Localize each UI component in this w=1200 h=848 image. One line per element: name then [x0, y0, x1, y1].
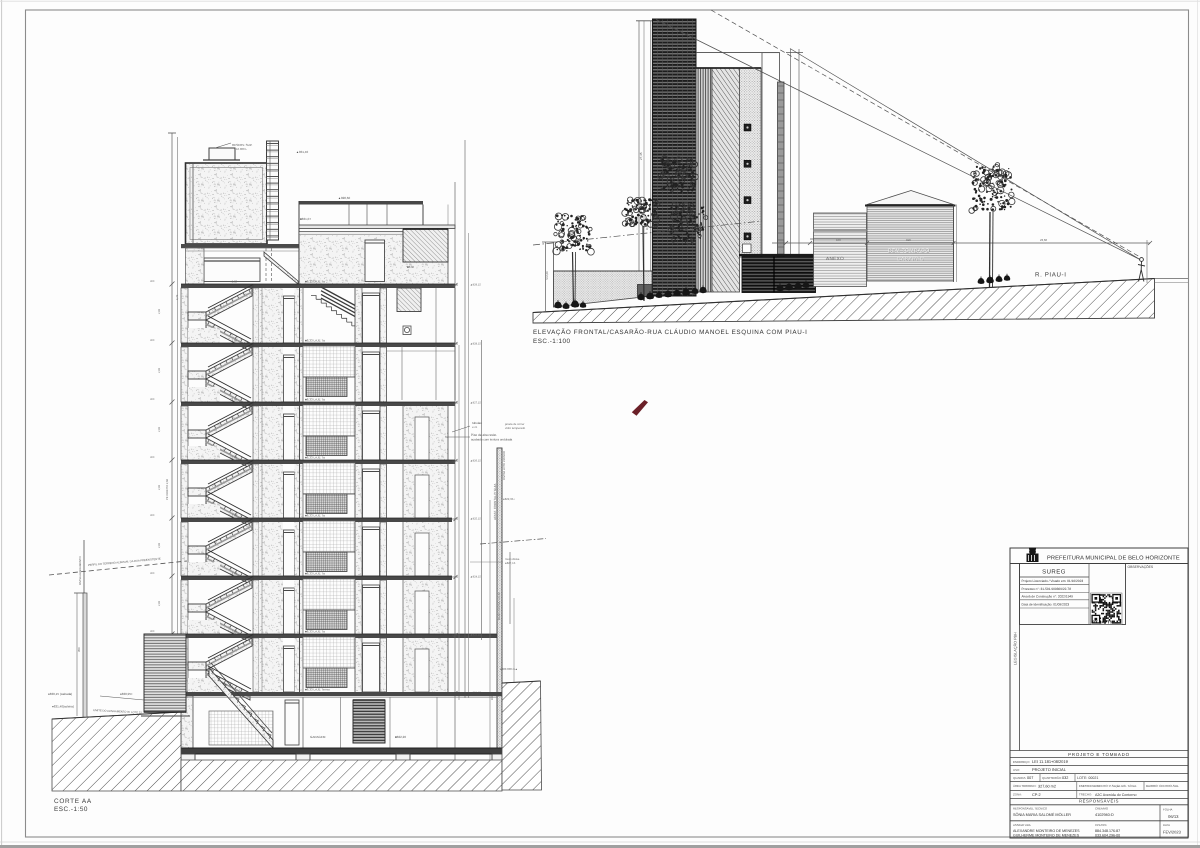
svg-text:300: 300	[150, 630, 155, 633]
svg-text:vidro temperado: vidro temperado	[505, 426, 526, 430]
svg-text:ANEXO: ANEXO	[826, 256, 844, 261]
svg-text:LEGISLAÇÃO PBH: LEGISLAÇÃO PBH	[1013, 632, 1018, 665]
svg-text:ALEXANDRE MONTEIRO DE MENEZ: ALEXANDRE MONTEIRO DE MENEZES	[1013, 829, 1080, 833]
svg-text:Data de Identificação: 01/09/: Data de Identificação: 01/09/2023	[1022, 603, 1070, 607]
svg-text:+2,88: +2,88	[230, 514, 238, 518]
svg-text:BEM TOMBADO: BEM TOMBADO	[888, 248, 930, 254]
svg-text:300: 300	[150, 514, 155, 517]
svg-text:ELEVAÇÃO FRONTAL/CASARÃO-RUA: ELEVAÇÃO FRONTAL/CASARÃO-RUA CLÁUDIO MAN…	[533, 328, 808, 336]
svg-text:Piso de alta resist.: Piso de alta resist.	[471, 433, 497, 437]
svg-text:27,45: 27,45	[639, 152, 643, 160]
svg-text:▲823,15: ▲823,15	[470, 634, 481, 637]
svg-text:+2,88: +2,88	[230, 339, 238, 343]
svg-text:CP-2: CP-2	[1032, 793, 1041, 797]
svg-text:+2,88: +2,88	[230, 630, 238, 634]
svg-text:R. PIAU-I: R. PIAU-I	[1035, 272, 1067, 279]
svg-text:300: 300	[150, 572, 155, 575]
svg-text:2,88: 2,88	[158, 542, 161, 548]
svg-text:▲827,15: ▲827,15	[470, 402, 481, 405]
svg-text:ÁREA TERRENO:: ÁREA TERRENO:	[1013, 784, 1037, 788]
svg-text:GARAGEM: GARAGEM	[310, 735, 326, 739]
svg-text:DIVISA LOTE VIZINHO: DIVISA LOTE VIZINHO	[502, 450, 506, 480]
svg-text:ø 25: ø 25	[472, 426, 478, 429]
svg-text:PROJETO INICIAL: PROJETO INICIAL	[1032, 767, 1067, 772]
svg-text:SUREG: SUREG	[1042, 569, 1066, 576]
svg-text:QUARTEIRÃO:: QUARTEIRÃO:	[1042, 776, 1062, 780]
svg-text:■822,20: ■822,20	[395, 735, 406, 739]
svg-text:CASARÃO: CASARÃO	[897, 256, 924, 263]
svg-text:EMPREENDIMENTO: P.Seção Urb.: EMPREENDIMENTO: P.Seção Urb. Térreo	[1079, 784, 1137, 788]
svg-text:▲831,40: ▲831,40	[296, 150, 308, 154]
svg-text:16.000 L: 16.000 L	[236, 147, 247, 151]
svg-text:▲829,15: ▲829,15	[470, 284, 481, 287]
svg-text:GUILHERME MONTEIRO DE MENEZ: GUILHERME MONTEIRO DE MENEZES	[1013, 834, 1080, 838]
svg-text:+2,88: +2,88	[230, 280, 238, 284]
svg-text:QUADRA:: QUADRA:	[1013, 776, 1026, 780]
svg-text:350: 350	[77, 647, 81, 652]
svg-text:■8,33 LAJE 7a: ■8,33 LAJE 7a	[305, 630, 325, 634]
svg-text:tubulao: tubulao	[472, 421, 482, 425]
svg-text:ESC.-1:50: ESC.-1:50	[54, 806, 88, 813]
svg-text:Processo n°: 31-501.909309/22: Processo n°: 31-501.909309/22-78	[1022, 587, 1072, 591]
svg-text:FOLHA: FOLHA	[1163, 808, 1172, 812]
svg-text:▲824,15: ▲824,15	[470, 576, 481, 579]
svg-text:Alvará de Construção n°: 2022: Alvará de Construção n°: 2022/1949	[1022, 595, 1074, 599]
svg-text:+2,88: +2,88	[230, 398, 238, 402]
svg-text:A2C Avenida do Contorno: A2C Avenida do Contorno	[1095, 793, 1137, 797]
svg-text:2,88: 2,88	[158, 484, 161, 490]
svg-text:+2,88: +2,88	[230, 456, 238, 460]
svg-text:06/13: 06/13	[1168, 814, 1179, 819]
svg-text:DIVISA ALINHAMENTO: DIVISA ALINHAMENTO	[79, 556, 82, 585]
svg-text:LOTE: 00021: LOTE: 00021	[1077, 776, 1098, 780]
svg-text:4102940-D: 4102940-D	[1095, 813, 1114, 817]
svg-text:160: 160	[836, 238, 841, 242]
svg-text:300: 300	[150, 398, 155, 401]
svg-text:▲828,15: ▲828,15	[470, 343, 481, 346]
svg-text:USO:: USO:	[1013, 768, 1020, 772]
svg-text:CREA/MG: CREA/MG	[1095, 807, 1108, 811]
svg-text:BX ■A∛T‰: BX ■A∛T‰	[1092, 619, 1115, 624]
svg-text:CPF/CPF: CPF/CPF	[1095, 823, 1107, 827]
svg-text:●300.000 m▲: ●300.000 m▲	[500, 667, 518, 671]
svg-text:2,88: 2,88	[158, 426, 161, 432]
svg-text:●830,15 (calcada): ●830,15 (calcada)	[48, 692, 72, 696]
svg-text:RESPONSÁVEIS: RESPONSÁVEIS	[1079, 799, 1119, 804]
svg-text:300: 300	[150, 339, 155, 342]
svg-text:BAIRRO: CENTRO-SUL: BAIRRO: CENTRO-SUL	[1146, 784, 1179, 788]
svg-text:●831,40(soleira): ●831,40(soleira)	[52, 705, 74, 709]
svg-text:■8,33 LAJE 7a: ■8,33 LAJE 7a	[305, 398, 325, 402]
svg-text:007: 007	[1027, 776, 1033, 780]
svg-text:300: 300	[150, 456, 155, 459]
svg-text:884.348.176-87: 884.348.176-87	[1095, 829, 1120, 833]
svg-text:●830,95+: ●830,95+	[120, 692, 133, 696]
svg-text:PREFEITURA MUNICIPAL DE BELO H: PREFEITURA MUNICIPAL DE BELO HORIZONTE	[1047, 556, 1180, 562]
svg-text:2,88: 2,88	[158, 600, 161, 606]
svg-text:300: 300	[150, 280, 155, 283]
svg-text:LEI 11.181+08/2019: LEI 11.181+08/2019	[1032, 759, 1069, 764]
svg-text:■670: ■670	[407, 265, 414, 269]
svg-text:■8,33 LAJE 7a: ■8,33 LAJE 7a	[305, 456, 325, 460]
svg-text:Projeto Licenciado / Visado em: Projeto Licenciado / Visado em: 01/10/20…	[1022, 579, 1084, 583]
svg-text:ZONA:: ZONA:	[1013, 792, 1022, 796]
svg-text:2,88: 2,88	[158, 367, 161, 373]
svg-text:■8,33 LAJE 7a: ■8,33 LAJE 7a	[305, 514, 325, 518]
svg-text:OBSERVAÇÕES: OBSERVAÇÕES	[1128, 565, 1154, 569]
svg-text:FEV/2023: FEV/2023	[1163, 830, 1182, 835]
svg-text:RESPONSÁVEL TÉCNICO: RESPONSÁVEL TÉCNICO	[1013, 807, 1048, 811]
svg-text:23,60: 23,60	[1040, 238, 1047, 242]
svg-text:ESC.-1:100: ESC.-1:100	[533, 338, 571, 345]
svg-text:SÔNIA MARIA SALOMÉ MÖLLER: SÔNIA MARIA SALOMÉ MÖLLER	[1013, 812, 1071, 817]
svg-text:■8,33 LAJE 7a: ■8,33 LAJE 7a	[305, 339, 325, 343]
svg-text:PROJETO E TOMBADO: PROJETO E TOMBADO	[1068, 752, 1130, 757]
svg-text:ASSINATURA: ASSINATURA	[1013, 823, 1031, 827]
svg-text:h=2,20: h=2,20	[545, 271, 549, 280]
svg-text:■8,33 LAJE Terreo: ■8,33 LAJE Terreo	[305, 688, 330, 692]
svg-text:●829,35+: ●829,35+	[503, 497, 515, 501]
svg-text:acabado com textura ondulada: acabado com textura ondulada	[471, 438, 513, 442]
svg-text:■8,33 LAJE 7a: ■8,33 LAJE 7a	[305, 280, 325, 284]
svg-text:▲825,15: ▲825,15	[470, 518, 481, 521]
svg-text:AFAST. FRONTAL P/ GUIA: AFAST. FRONTAL P/ GUIA	[493, 484, 497, 520]
svg-text:4,70: 4,70	[176, 294, 179, 300]
svg-text:910: 910	[906, 238, 911, 242]
svg-text:▲826,15: ▲826,15	[470, 460, 481, 463]
svg-text:DATA: DATA	[1163, 823, 1170, 827]
svg-text:●827,15: ●827,15	[505, 561, 516, 565]
svg-text:CORTE AA: CORTE AA	[54, 798, 92, 805]
svg-text:■8,33 LAJE 7a: ■8,33 LAJE 7a	[305, 572, 325, 576]
svg-text:PE DIREITO 2,60: PE DIREITO 2,60	[166, 478, 169, 500]
svg-text:2,88: 2,88	[158, 308, 161, 314]
svg-text:+2,88: +2,88	[230, 572, 238, 576]
svg-text:MURO DIVISA h=2,20: MURO DIVISA h=2,20	[497, 592, 501, 620]
svg-text:ENDEREÇO:: ENDEREÇO:	[1013, 760, 1030, 764]
svg-text:033.604.296-00: 033.604.296-00	[1095, 834, 1120, 838]
svg-text:▲828,60: ▲828,60	[338, 196, 350, 200]
svg-text:327,60 m2: 327,60 m2	[1038, 784, 1056, 788]
svg-text:TRECHO:: TRECHO:	[1079, 792, 1092, 796]
svg-text:■831,07: ■831,07	[300, 217, 311, 221]
svg-text:032: 032	[1062, 776, 1068, 780]
